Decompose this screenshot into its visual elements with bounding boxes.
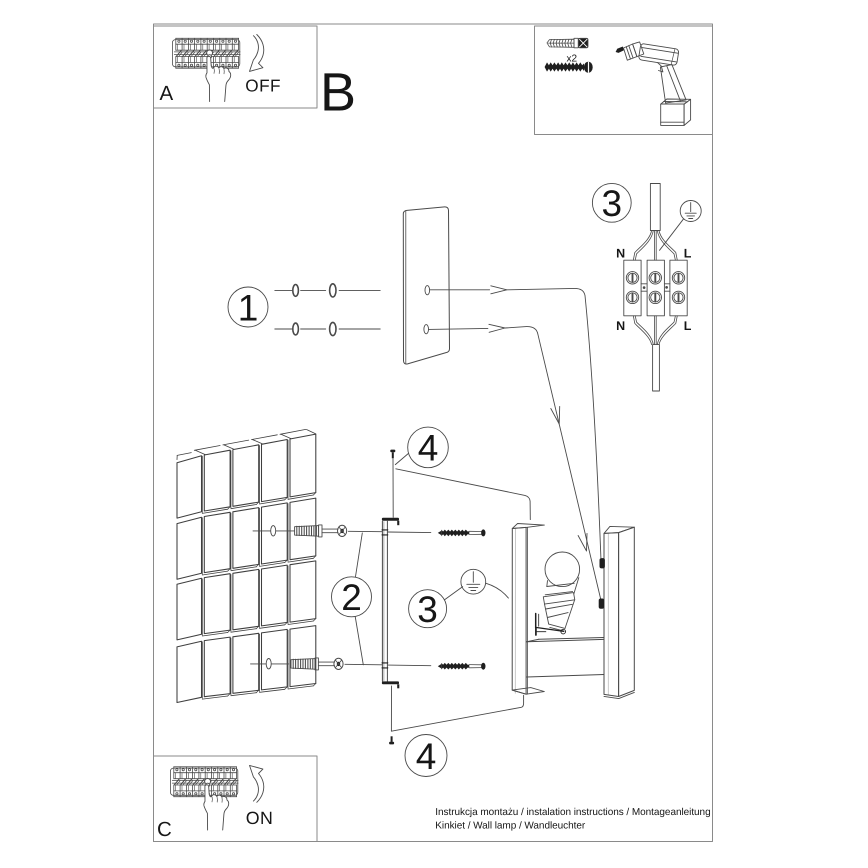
svg-text:4: 4: [418, 428, 439, 469]
svg-text:x2: x2: [567, 54, 578, 65]
svg-text:Instrukcja montażu / instalati: Instrukcja montażu / instalation instruc…: [435, 807, 710, 818]
svg-text:L: L: [684, 319, 692, 333]
svg-text:4: 4: [416, 736, 437, 777]
svg-text:OFF: OFF: [245, 75, 281, 95]
svg-text:N: N: [616, 319, 625, 333]
svg-text:2: 2: [341, 577, 362, 618]
svg-text:3: 3: [602, 183, 623, 224]
svg-text:1: 1: [238, 287, 259, 328]
svg-text:B: B: [320, 63, 356, 123]
svg-text:N: N: [616, 247, 625, 261]
svg-text:A: A: [160, 82, 174, 105]
svg-text:Kinkiet / Wall lamp / Wandleuc: Kinkiet / Wall lamp / Wandleuchter: [435, 821, 586, 832]
svg-text:ON: ON: [246, 808, 273, 828]
svg-text:3: 3: [417, 589, 438, 630]
svg-text:C: C: [157, 818, 172, 841]
svg-text:L: L: [684, 247, 692, 261]
